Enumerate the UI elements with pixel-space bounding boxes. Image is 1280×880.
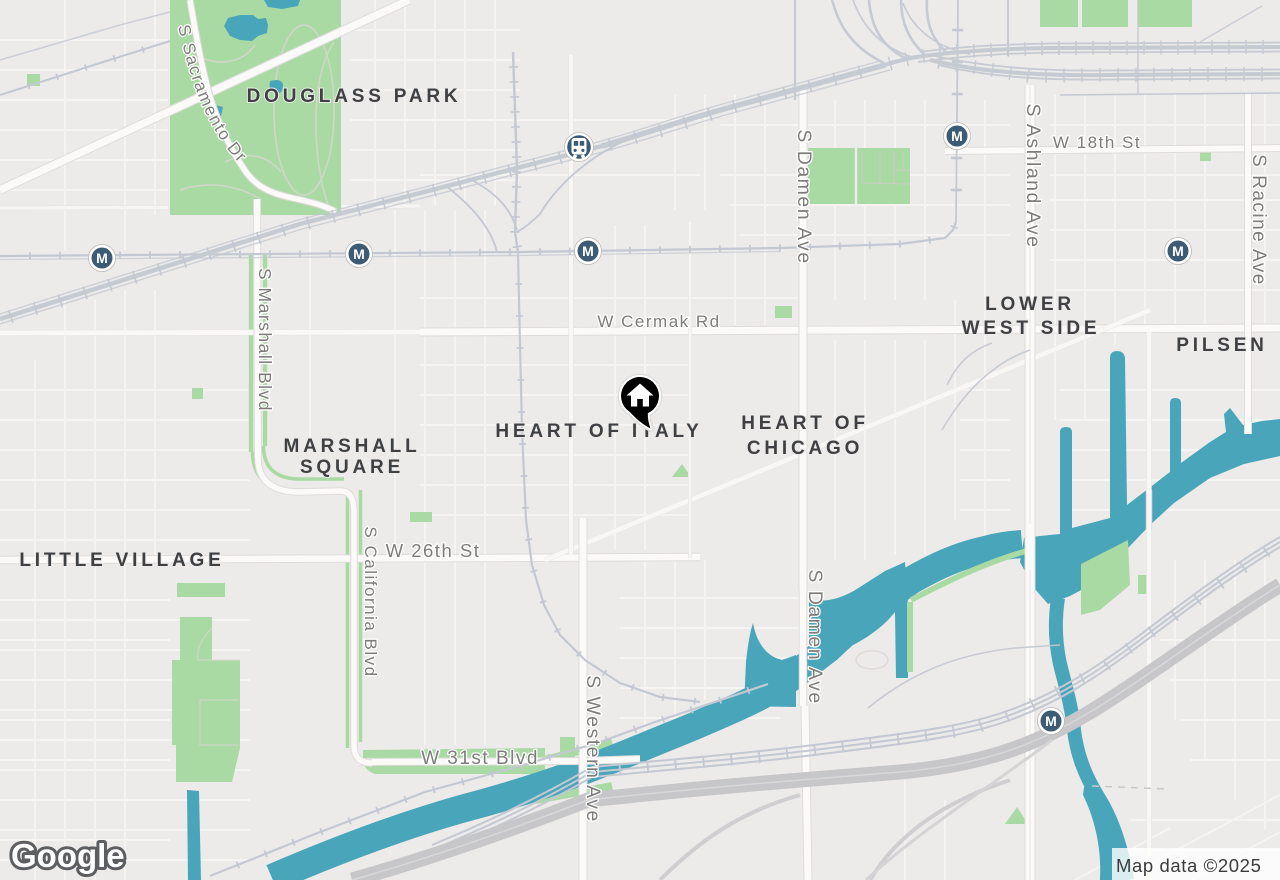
svg-text:M: M (582, 243, 594, 259)
svg-text:W Cermak Rd: W Cermak Rd (597, 312, 720, 331)
svg-text:M: M (1172, 243, 1184, 259)
svg-text:S Western Ave: S Western Ave (582, 675, 604, 823)
svg-text:DOUGLASS PARK: DOUGLASS PARK (247, 86, 462, 107)
svg-text:Google: Google (11, 837, 125, 874)
svg-text:S Ashland Ave: S Ashland Ave (1022, 104, 1044, 249)
svg-text:LITTLE VILLAGE: LITTLE VILLAGE (19, 550, 224, 571)
svg-text:S California Blvd: S California Blvd (361, 526, 380, 677)
svg-text:SQUARE: SQUARE (300, 457, 404, 478)
svg-text:S Marshall Blvd: S Marshall Blvd (255, 268, 275, 412)
svg-text:S Damen Ave: S Damen Ave (804, 569, 826, 704)
svg-text:M: M (951, 128, 963, 144)
svg-text:S Racine Ave: S Racine Ave (1248, 154, 1269, 286)
svg-text:M: M (353, 246, 365, 262)
svg-text:PILSEN: PILSEN (1176, 335, 1267, 356)
svg-text:W 26th St: W 26th St (386, 540, 481, 561)
svg-text:HEART OF: HEART OF (741, 413, 869, 434)
svg-text:MARSHALL: MARSHALL (284, 436, 421, 457)
svg-text:CHICAGO: CHICAGO (747, 438, 863, 459)
svg-text:S Damen Ave: S Damen Ave (793, 129, 815, 264)
svg-text:W 18th St: W 18th St (1053, 133, 1141, 152)
svg-text:M: M (1045, 713, 1057, 729)
svg-text:W 31st Blvd: W 31st Blvd (421, 748, 539, 769)
svg-text:LOWER: LOWER (985, 294, 1075, 315)
svg-text:M: M (96, 250, 108, 266)
svg-text:Map data ©2025: Map data ©2025 (1116, 855, 1261, 876)
svg-text:WEST SIDE: WEST SIDE (962, 318, 1101, 339)
svg-text:HEART OF ITALY: HEART OF ITALY (495, 421, 702, 442)
